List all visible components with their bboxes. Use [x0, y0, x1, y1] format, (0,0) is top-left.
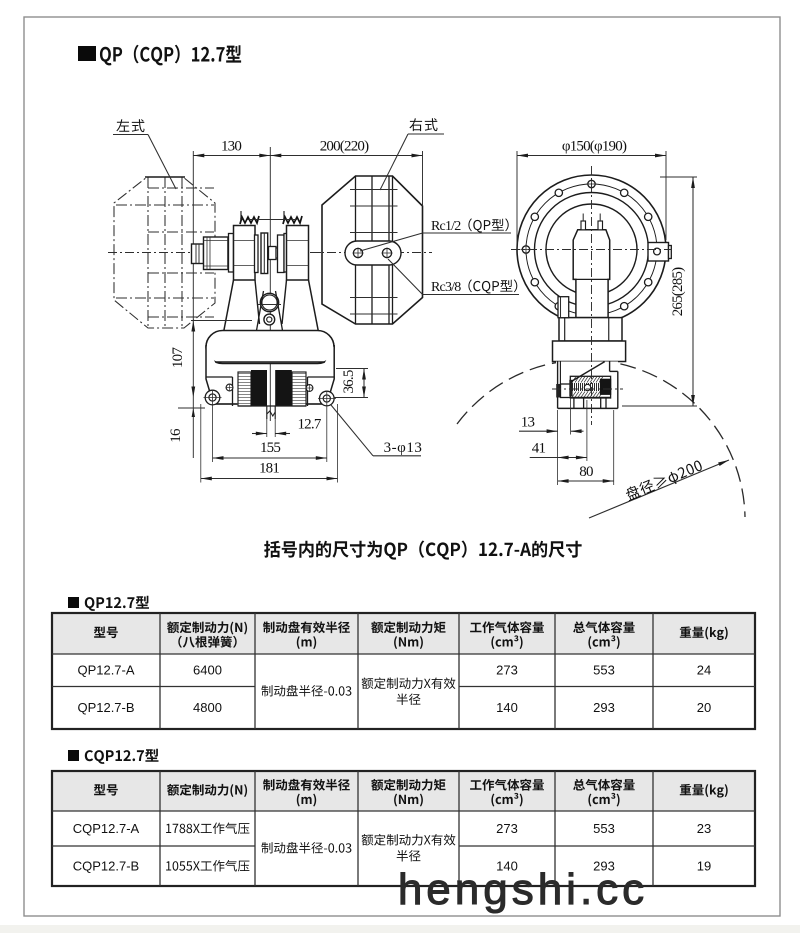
svg-text:80: 80 — [579, 464, 593, 480]
svg-text:24: 24 — [697, 663, 711, 678]
svg-text:155: 155 — [260, 440, 280, 456]
svg-text:φ150(φ190): φ150(φ190) — [562, 139, 627, 155]
svg-text:hengshi.cc: hengshi.cc — [398, 865, 648, 914]
svg-text:130: 130 — [221, 139, 241, 155]
svg-text:CQP12.7-B: CQP12.7-B — [73, 859, 139, 874]
svg-text:20: 20 — [697, 700, 711, 715]
svg-text:19: 19 — [697, 859, 711, 874]
svg-text:QP12.7-B: QP12.7-B — [77, 700, 134, 715]
svg-text:16: 16 — [168, 428, 184, 443]
svg-text:273: 273 — [496, 821, 518, 836]
svg-text:QP12.7-A: QP12.7-A — [77, 663, 134, 678]
svg-text:553: 553 — [593, 663, 615, 678]
svg-text:3-φ13: 3-φ13 — [384, 440, 423, 456]
svg-text:553: 553 — [593, 821, 615, 836]
svg-text:Rc3/8: Rc3/8 — [431, 280, 461, 295]
svg-text:6400: 6400 — [193, 663, 222, 678]
svg-text:273: 273 — [496, 663, 518, 678]
svg-text:265(285): 265(285) — [670, 267, 686, 316]
svg-text:181: 181 — [259, 461, 279, 477]
svg-text:12.7: 12.7 — [297, 417, 321, 433]
svg-text:CQP12.7-A: CQP12.7-A — [73, 821, 140, 836]
svg-text:36.5: 36.5 — [341, 370, 357, 393]
svg-text:200(220): 200(220) — [320, 139, 369, 155]
svg-text:140: 140 — [496, 700, 518, 715]
svg-text:107: 107 — [170, 347, 186, 368]
svg-text:293: 293 — [593, 700, 615, 715]
svg-text:23: 23 — [697, 821, 711, 836]
svg-text:Rc1/2: Rc1/2 — [431, 219, 461, 234]
svg-text:4800: 4800 — [193, 700, 222, 715]
svg-text:13: 13 — [521, 415, 535, 431]
svg-text:41: 41 — [532, 441, 546, 457]
